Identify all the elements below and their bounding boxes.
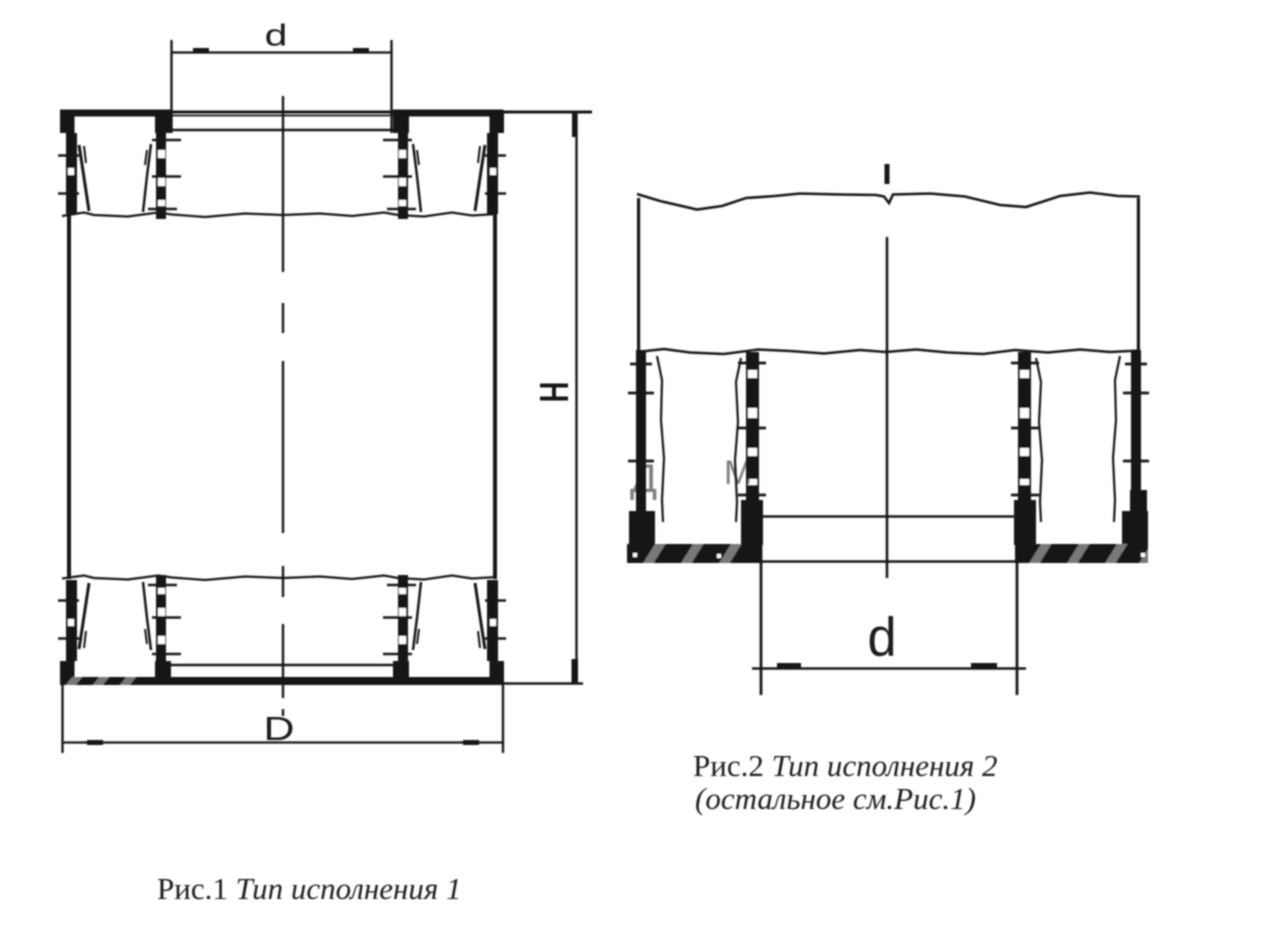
svg-text:d: d <box>265 17 288 52</box>
svg-text:D: D <box>264 711 295 748</box>
svg-text:Рис.2 Тип исполнения 2: Рис.2 Тип исполнения 2 <box>693 748 998 783</box>
svg-text:d: d <box>867 606 896 668</box>
svg-text:Рис.1 Тип исполнения 1: Рис.1 Тип исполнения 1 <box>157 871 462 906</box>
svg-text:М: М <box>724 454 752 492</box>
svg-text:Д: Д <box>630 457 657 501</box>
svg-text:(остальное см.Рис.1): (остальное см.Рис.1) <box>695 781 976 816</box>
